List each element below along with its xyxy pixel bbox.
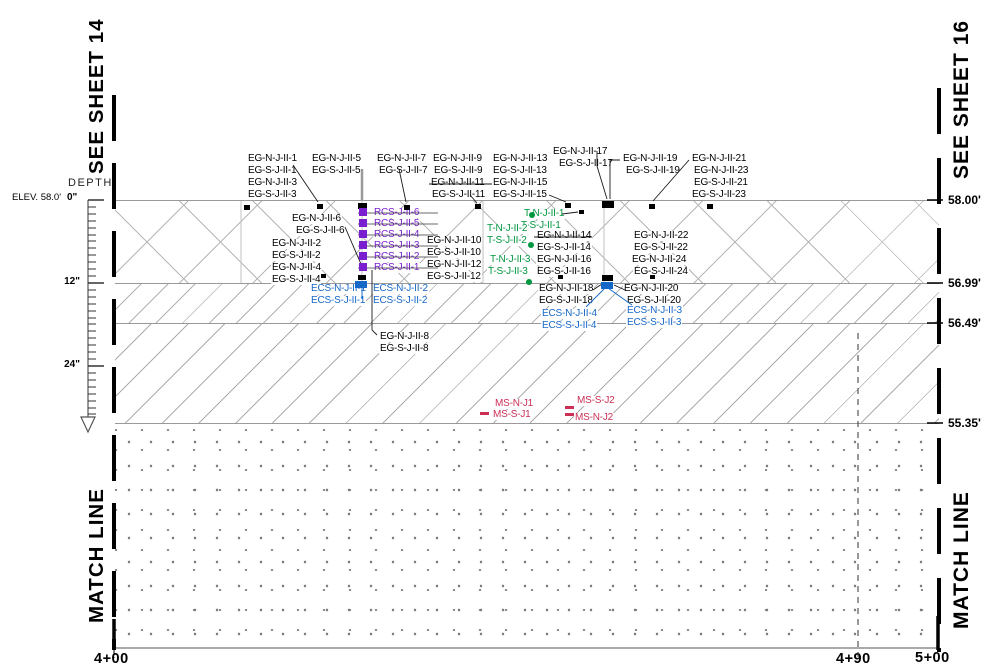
elevation-5535: 55.35' [948, 416, 981, 430]
cross-section-drawing: SEE SHEET 14 SEE SHEET 16 MATCH LINE MAT… [0, 0, 996, 670]
instrument-label: EG-S-J-II-11 [431, 190, 486, 200]
instrument-label-t: T-S-J-II-3 [487, 267, 529, 277]
depth-scale-title: DEPTH [68, 177, 113, 189]
station-4-90: 4+90 [836, 651, 871, 667]
elevation-5649: 56.49' [948, 316, 981, 330]
station-4-00: 4+00 [94, 651, 129, 667]
instrument-label: EG-S-J-II-9 [433, 166, 483, 176]
instrument-label: EG-N-J-II-20 [623, 284, 679, 294]
station-5-00: 5+00 [915, 650, 950, 666]
instrument-label: EG-N-J-II-24 [631, 255, 687, 265]
instrument-label: EG-N-J-II-13 [492, 154, 548, 164]
instrument-label-rcs: RCS-J-II-5 [373, 219, 420, 229]
instrument-label: EG-S-J-II-1 [247, 166, 297, 176]
instrument-label-ecs: ECS-N-J-II-4 [541, 309, 598, 319]
instrument-label: EG-N-J-II-23 [693, 166, 749, 176]
elevation-note: ELEV. 58.0' [12, 192, 61, 203]
instrument-label-ecs: ECS-N-J-II-2 [372, 284, 429, 294]
instrument-label: EG-S-J-II-2 [271, 251, 321, 261]
ruler-arrow-icon [81, 417, 95, 432]
instrument-label-ms: MS-S-J2 [576, 396, 616, 406]
instrument-label-ecs: ECS-N-J-II-3 [626, 306, 683, 316]
instrument-label-rcs: RCS-J-II-2 [373, 252, 420, 262]
instrument-label-ms: MS-N-J2 [574, 413, 614, 423]
instrument-label-rcs: RCS-J-II-6 [373, 208, 420, 218]
match-line-left-label: MATCH LINE [83, 477, 111, 635]
depth-tick-0: 0" [67, 192, 77, 203]
instrument-label: EG-S-J-II-8 [379, 344, 429, 354]
instrument-label-rcs: RCS-J-II-1 [373, 263, 420, 273]
instrument-label: EG-N-J-II-14 [536, 231, 592, 241]
instrument-label-t: T-N-J-II-1 [523, 209, 565, 219]
instrument-label-t: T-N-J-II-3 [489, 255, 531, 265]
instrument-label: EG-S-J-II-15 [492, 190, 548, 200]
depth-ruler [81, 200, 104, 432]
instrument-label: EG-N-J-II-4 [271, 263, 322, 273]
instrument-label: EG-S-J-II-24 [633, 267, 689, 277]
instrument-label: EG-N-J-II-16 [536, 255, 592, 265]
instrument-label: EG-N-J-II-2 [271, 239, 322, 249]
instrument-label: EG-S-J-II-19 [625, 166, 681, 176]
instrument-label: EG-S-J-II-16 [536, 267, 592, 277]
instrument-label-ecs: ECS-S-J-II-1 [310, 296, 366, 306]
instrument-label: EG-N-J-II-15 [492, 178, 548, 188]
instrument-label: EG-S-J-II-3 [247, 190, 297, 200]
instrument-label: EG-S-J-II-12 [426, 272, 482, 282]
instrument-label-t: T-S-J-II-2 [486, 236, 528, 246]
instrument-label-ecs: ECS-N-J-II-1 [310, 284, 367, 294]
instrument-label: EG-N-J-II-22 [633, 231, 689, 241]
instrument-label: EG-S-J-II-5 [311, 166, 361, 176]
instrument-label: EG-N-J-II-7 [376, 154, 427, 164]
stipple-band [115, 423, 939, 648]
instrument-label: EG-S-J-II-10 [426, 248, 482, 258]
instrument-label: EG-S-J-II-23 [691, 190, 747, 200]
instrument-label-ecs: ECS-S-J-II-4 [541, 321, 597, 331]
instrument-label: EG-N-J-II-10 [426, 236, 482, 246]
instrument-label-rcs: RCS-J-II-3 [373, 241, 420, 251]
instrument-label: EG-S-J-II-18 [538, 296, 594, 306]
instrument-label: EG-N-J-II-12 [426, 260, 482, 270]
instrument-label: EG-S-J-II-6 [295, 226, 345, 236]
elevation-5699: 56.99' [948, 276, 981, 290]
instrument-label: EG-S-J-II-13 [492, 166, 548, 176]
instrument-label-ms: MS-S-J1 [492, 410, 532, 420]
instrument-label: EG-N-J-II-6 [291, 214, 342, 224]
see-sheet-left-label: SEE SHEET 14 [83, 6, 111, 186]
instrument-label: EG-S-J-II-22 [633, 243, 689, 253]
instrument-label: EG-S-J-II-7 [378, 166, 428, 176]
instrument-label-ms: MS-N-J1 [494, 399, 534, 409]
elevation-58: 58.00' [948, 193, 981, 207]
instrument-label-ecs: ECS-S-J-II-3 [626, 318, 682, 328]
instrument-label: EG-N-J-II-19 [622, 154, 678, 164]
instrument-label: EG-N-J-II-18 [538, 284, 594, 294]
instrument-label: EG-N-J-II-1 [247, 154, 298, 164]
depth-tick-24: 24" [56, 359, 80, 370]
see-sheet-right-label: SEE SHEET 16 [947, 5, 977, 193]
instrument-label-ecs: ECS-S-J-II-2 [372, 296, 428, 306]
instrument-label: EG-S-J-II-14 [536, 243, 592, 253]
instrument-label: EG-N-J-II-11 [430, 178, 486, 188]
instrument-label: EG-S-J-II-17 [558, 159, 614, 169]
instrument-label-rcs: RCS-J-II-4 [373, 230, 420, 240]
instrument-label: EG-N-J-II-21 [691, 154, 747, 164]
instrument-label: EG-N-J-II-5 [311, 154, 362, 164]
instrument-label: EG-N-J-II-9 [432, 154, 483, 164]
instrument-label: EG-N-J-II-17 [552, 147, 608, 157]
instrument-label: EG-N-J-II-3 [247, 178, 298, 188]
instrument-label: EG-S-J-II-21 [693, 178, 749, 188]
instrument-label: EG-N-J-II-8 [379, 332, 430, 342]
match-line-right-label: MATCH LINE [947, 472, 977, 648]
depth-tick-12: 12" [58, 276, 80, 287]
instrument-label-t: T-N-J-II-2 [486, 224, 528, 234]
hatch-band-upper-diagonal [115, 283, 939, 323]
